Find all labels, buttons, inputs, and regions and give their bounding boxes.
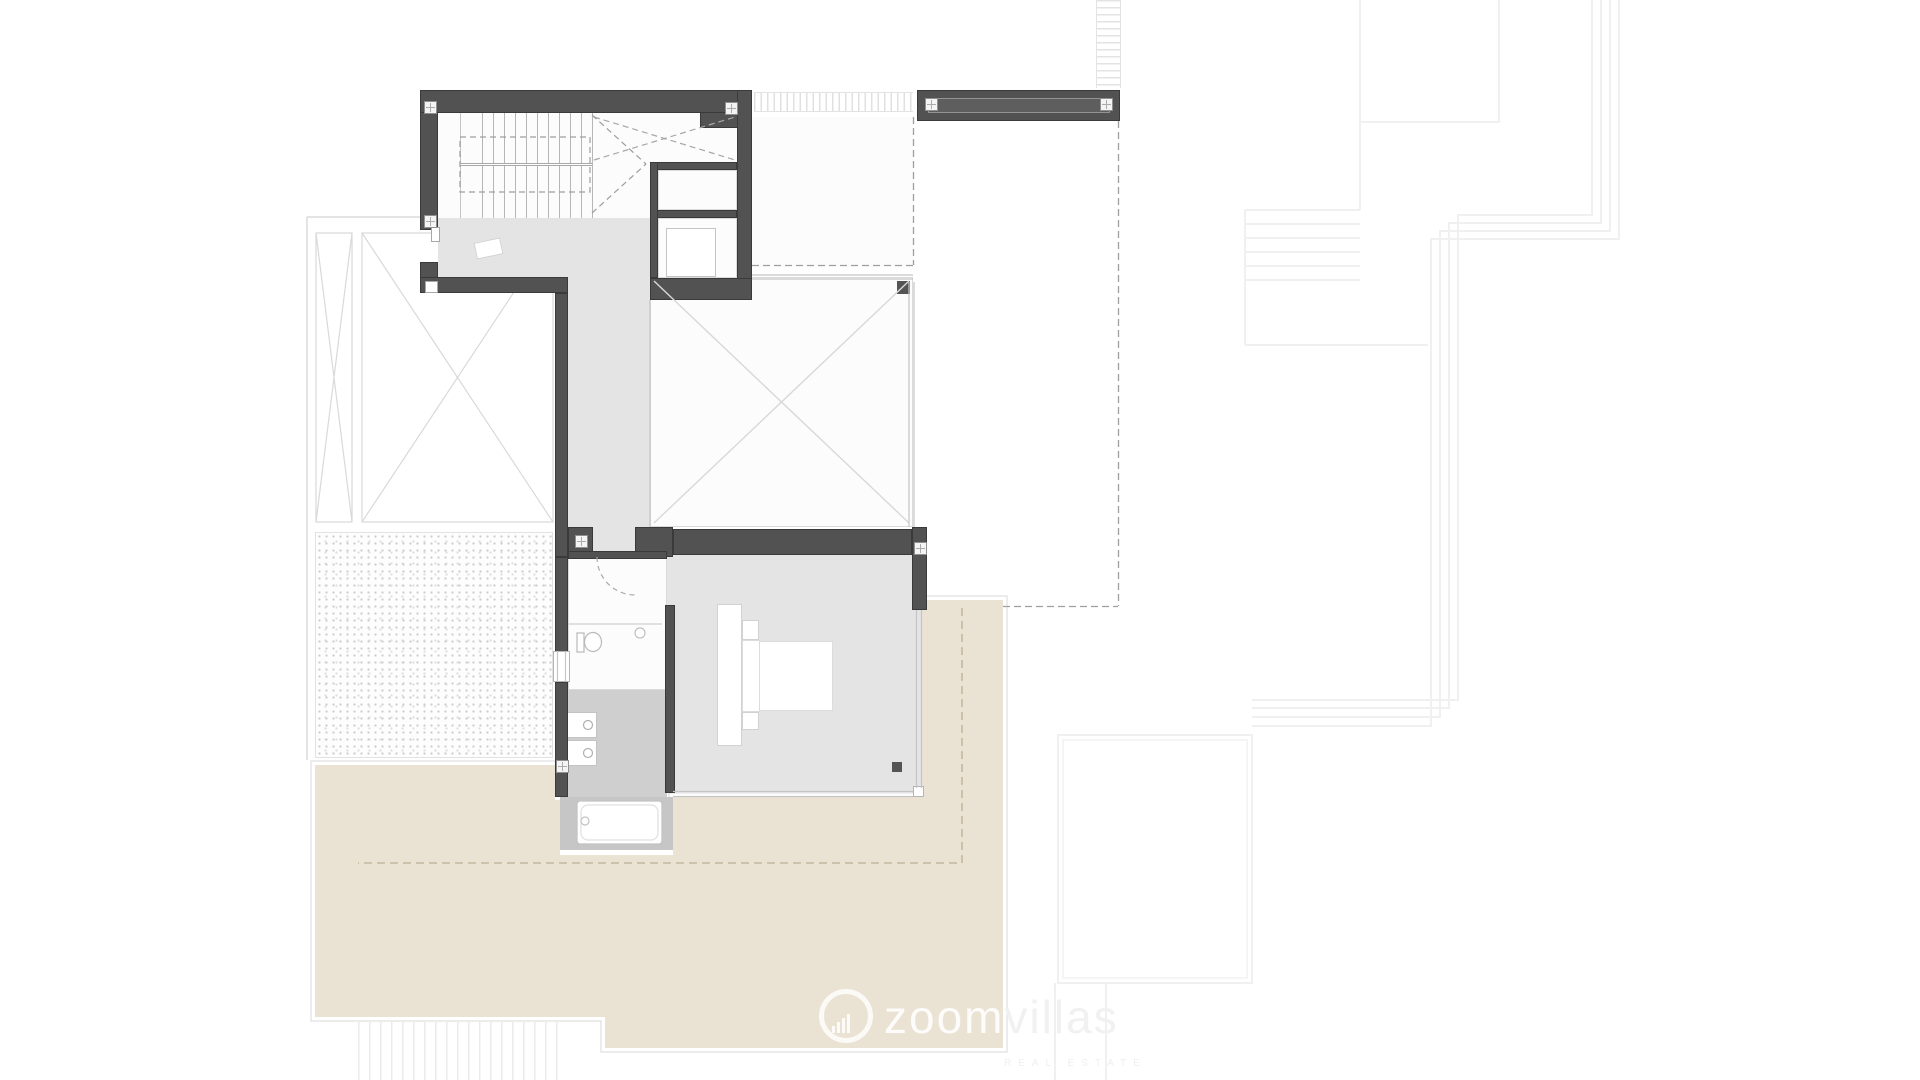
adjacent-level-outlines: [1055, 0, 1619, 1080]
watermark-brand-primary: zoom: [884, 991, 1004, 1043]
sink-bottom: [566, 740, 597, 766]
wall-corridor-west: [555, 293, 568, 557]
wall-closet-top2: [650, 210, 737, 218]
wall-north: [420, 90, 752, 113]
sink-top: [566, 712, 597, 738]
column-marker-icon: [925, 98, 938, 111]
wall-closet-south: [650, 278, 752, 300]
wall-bathroom-north: [568, 551, 667, 559]
watermark-brand-secondary: villas: [1004, 991, 1118, 1043]
glazing-corner-marker: [913, 786, 924, 797]
nightstand-bottom: [742, 712, 759, 730]
column-marker-icon: [725, 102, 738, 115]
void-over-entry: [752, 117, 913, 267]
stair-hall-floor: [438, 218, 650, 277]
wardrobe: [717, 604, 742, 746]
wall-bathroom-divider: [665, 605, 675, 793]
wall-bath-west-upper: [555, 557, 568, 653]
bed-mattress: [759, 641, 833, 711]
floor-drain-marker: [892, 762, 902, 772]
corridor-floor: [568, 277, 650, 527]
pergola-hatch-strip: [754, 92, 913, 112]
watermark-logo-circle: [819, 989, 873, 1043]
floor-plan-canvas: zoomvillas REAL ESTATE: [0, 0, 1920, 1080]
wall-bath-west-lower: [555, 682, 568, 797]
column-marker-icon: [424, 101, 437, 114]
closet-room-upper: [658, 170, 737, 210]
column-marker-dark: [897, 281, 910, 294]
lower-stair-hatch: [358, 1022, 563, 1080]
wall-hall-south: [420, 277, 568, 293]
wall-bedroom-north-c: [673, 529, 912, 555]
column-marker-icon: [1100, 98, 1113, 111]
bathroom-window: [553, 651, 570, 682]
skylight-void-narrow: [316, 233, 352, 522]
door-marker-corner: [425, 281, 438, 293]
wall-west-stair: [420, 112, 438, 230]
wall-bar-inner-slot: [928, 98, 1110, 113]
column-marker-icon: [575, 535, 588, 548]
nightstand-top: [742, 620, 759, 640]
wall-east-stair-block: [737, 90, 752, 300]
terrace-layer: [0, 0, 1920, 1080]
bed-headboard: [742, 640, 760, 712]
wall-bedroom-east-column: [912, 527, 927, 610]
toilet-room-floor: [568, 557, 667, 690]
wall-closet-west: [650, 162, 658, 278]
shower-cabin: [666, 228, 716, 277]
void-over-living-room: [650, 277, 913, 527]
wall-closet-top1: [650, 162, 737, 170]
column-marker-icon: [556, 760, 569, 773]
bathtub-alcove-floor: [560, 797, 673, 855]
door-marker-west: [431, 227, 440, 242]
stair-flight-divider: [460, 163, 592, 166]
watermark-brand: zoomvillas: [884, 994, 1119, 1040]
column-marker-icon: [914, 542, 927, 555]
watermark-tagline: REAL ESTATE: [1004, 1058, 1147, 1069]
background-linework: [0, 0, 1920, 1080]
gravel-roof-area: [315, 532, 553, 758]
detail-linework: [0, 0, 1920, 1080]
exterior-stair-strip: [1096, 0, 1121, 88]
column-marker-icon: [424, 215, 437, 228]
